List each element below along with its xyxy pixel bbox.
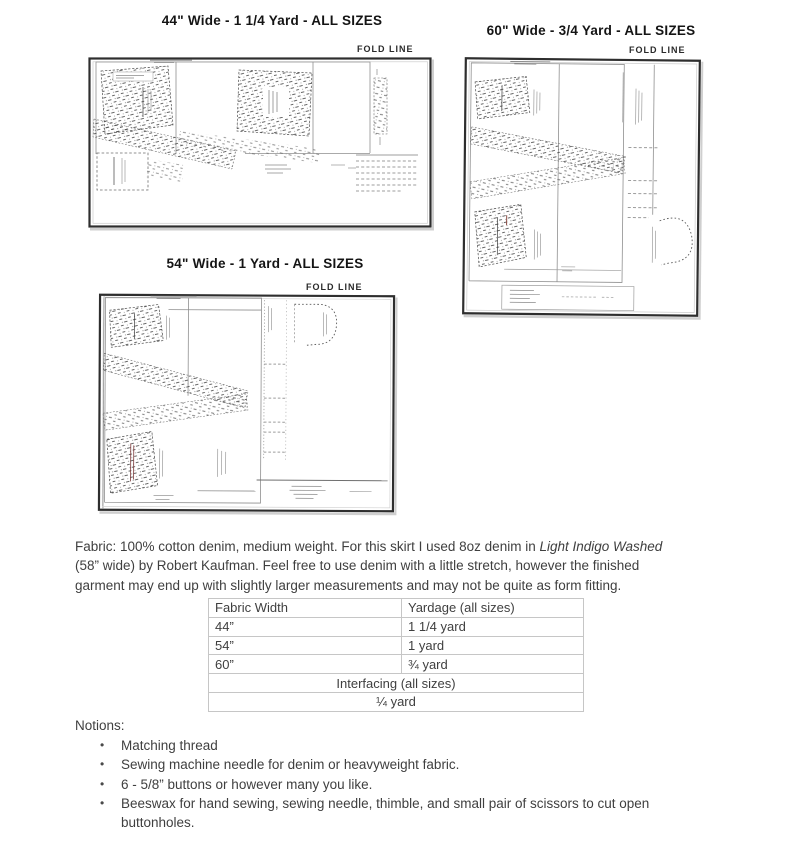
yardage-60-cell: ¾ yard <box>402 655 584 674</box>
table-row: 54” 1 yard <box>209 636 584 655</box>
yardage-table-header-yardage: Yardage (all sizes) <box>402 599 584 618</box>
notion-item-needle: Sewing machine needle for denim or heavy… <box>121 755 721 774</box>
layout-44-title: 44" Wide - 1 1/4 Yard - ALL SIZES <box>120 13 424 28</box>
fabric-paragraph-line-3: garment may end up with slightly larger … <box>75 576 735 595</box>
layout-54-diagram-image <box>97 293 395 513</box>
notion-item-thread: Matching thread <box>121 736 721 755</box>
interfacing-yardage-cell: ¼ yard <box>209 692 584 711</box>
layout-54-title: 54" Wide - 1 Yard - ALL SIZES <box>115 256 415 271</box>
layout-54-fold-line-label: FOLD LINE <box>306 282 363 292</box>
layout-60-fold-line-label: FOLD LINE <box>629 45 686 55</box>
layout-60-title: 60" Wide - 3/4 Yard - ALL SIZES <box>448 23 734 38</box>
yardage-54-cell: 1 yard <box>402 636 584 655</box>
bullet-icon: • <box>100 775 121 794</box>
fabric-width-54-cell: 54” <box>209 636 402 655</box>
fabric-description-paragraph: Fabric: 100% cotton denim, medium weight… <box>75 537 735 595</box>
layout-60-cutting-diagram <box>462 57 702 317</box>
list-item: • Sewing machine needle for denim or hea… <box>100 755 732 774</box>
fabric-name-italic: Light Indigo Washed <box>539 539 662 554</box>
table-row: 60” ¾ yard <box>209 655 584 674</box>
fabric-width-44-cell: 44” <box>209 617 402 636</box>
fabric-paragraph-line1-regular: Fabric: 100% cotton denim, medium weight… <box>75 539 539 554</box>
layout-44-cutting-diagram <box>88 57 432 228</box>
notion-item-buttons: 6 - 5/8” buttons or however many you lik… <box>121 775 721 794</box>
layout-60-diagram-image <box>462 57 702 317</box>
yardage-44-cell: 1 1/4 yard <box>402 617 584 636</box>
list-item: • Matching thread <box>100 736 732 755</box>
list-item: • Beeswax for hand sewing, sewing needle… <box>100 794 732 833</box>
fabric-paragraph-line-1: Fabric: 100% cotton denim, medium weight… <box>75 537 735 556</box>
layout-44-diagram-image <box>88 57 432 228</box>
interfacing-header-cell: Interfacing (all sizes) <box>209 674 584 693</box>
layout-54-cutting-diagram <box>97 293 395 513</box>
yardage-table-header-fabric-width: Fabric Width <box>209 599 402 618</box>
notions-heading: Notions: <box>75 718 125 733</box>
table-row: Interfacing (all sizes) <box>209 674 584 693</box>
pattern-instruction-page: 44" Wide - 1 1/4 Yard - ALL SIZES FOLD L… <box>0 0 794 843</box>
notion-item-beeswax: Beeswax for hand sewing, sewing needle, … <box>121 794 721 833</box>
bullet-icon: • <box>100 755 121 774</box>
table-row: 44” 1 1/4 yard <box>209 617 584 636</box>
layout-44-fold-line-label: FOLD LINE <box>357 44 414 54</box>
table-row: ¼ yard <box>209 692 584 711</box>
fabric-width-60-cell: 60” <box>209 655 402 674</box>
bullet-icon: • <box>100 736 121 755</box>
notions-list: • Matching thread • Sewing machine needl… <box>100 736 732 832</box>
yardage-table-header-row: Fabric Width Yardage (all sizes) <box>209 599 584 618</box>
fabric-paragraph-line-2: (58” wide) by Robert Kaufman. Feel free … <box>75 556 735 575</box>
bullet-icon: • <box>100 794 121 813</box>
list-item: • 6 - 5/8” buttons or however many you l… <box>100 775 732 794</box>
yardage-table: Fabric Width Yardage (all sizes) 44” 1 1… <box>208 598 584 712</box>
